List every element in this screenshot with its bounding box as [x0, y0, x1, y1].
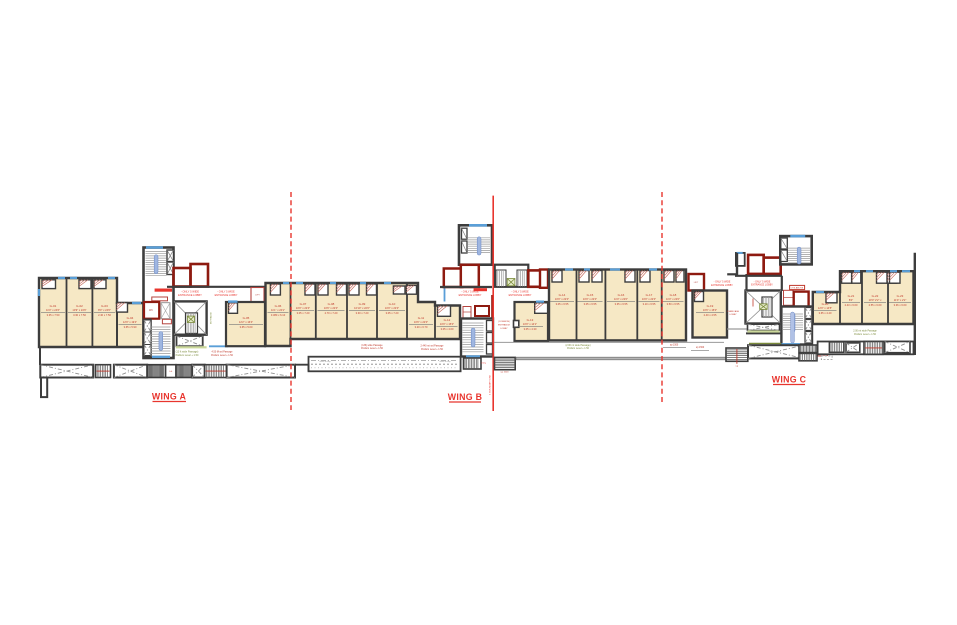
- svg-text:10'6" x 22'0": 10'6" x 22'0": [414, 320, 428, 324]
- svg-text:ENTRANCE LOBBY: ENTRANCE LOBBY: [751, 284, 773, 287]
- svg-text:Podium Level + 1.50: Podium Level + 1.50: [421, 348, 444, 351]
- svg-text:G-23: G-23: [897, 294, 904, 298]
- svg-text:G-17: G-17: [646, 293, 653, 297]
- svg-text:10'0" 2'2" x: 10'0" 2'2" x: [869, 298, 882, 302]
- svg-text:LIFT: LIFT: [255, 295, 260, 297]
- svg-text:2.40 x 7.50: 2.40 x 7.50: [98, 313, 111, 317]
- svg-text:Goes to Sky: Goes to Sky: [770, 350, 781, 353]
- svg-text:(COMMON): (COMMON): [498, 321, 510, 323]
- svg-text:3.35 x 7.50: 3.35 x 7.50: [47, 313, 60, 317]
- svg-text:3.65 x 4.40: 3.65 x 4.40: [819, 311, 832, 315]
- svg-text:2.40 x 4.55: 2.40 x 4.55: [704, 313, 717, 317]
- svg-text:G-16: G-16: [618, 293, 625, 297]
- svg-text:Podium Level + 1.50: Podium Level + 1.50: [361, 347, 384, 350]
- svg-text:G-14: G-14: [559, 293, 566, 297]
- svg-text:G-07: G-07: [300, 302, 307, 306]
- svg-text:G-21: G-21: [848, 294, 855, 298]
- svg-text:3.35 x 6.55: 3.35 x 6.55: [615, 302, 628, 306]
- svg-text:12'0" x 14'5": 12'0" x 14'5": [818, 306, 832, 310]
- svg-text:3.36 x 6.60: 3.36 x 6.60: [894, 303, 907, 307]
- svg-text:STAIRCASE: STAIRCASE: [727, 310, 740, 313]
- svg-text:Podium Level + 1.50: Podium Level + 1.50: [567, 347, 590, 350]
- svg-text:8'0": 8'0": [849, 298, 853, 302]
- svg-text:up 1500: up 1500: [670, 345, 679, 347]
- svg-text:Goes to Sky: Goes to Sky: [440, 360, 451, 363]
- svg-text:ENTRANCE LOBBY: ENTRANCE LOBBY: [509, 294, 532, 297]
- svg-text:Goes to Sky: Goes to Sky: [320, 360, 331, 363]
- svg-text:Podium Level + 1.50: Podium Level + 1.50: [211, 354, 234, 357]
- svg-text:3.05 x 6.55: 3.05 x 6.55: [556, 302, 569, 306]
- svg-text:ENTRANCE LOBBY: ENTRANCE LOBBY: [178, 293, 202, 297]
- svg-text:ENTRANCE LOBBY: ENTRANCE LOBBY: [215, 294, 238, 297]
- svg-text:3.30 x 7.50: 3.30 x 7.50: [73, 313, 86, 317]
- svg-text:G-19: G-19: [707, 304, 714, 308]
- svg-text:WING A: WING A: [152, 392, 187, 402]
- svg-text:OTS ABOVE: OTS ABOVE: [791, 287, 804, 290]
- svg-text:10'0" x 22'0": 10'0" x 22'0": [385, 306, 399, 310]
- svg-text:10'0" x 22'0": 10'0" x 22'0": [555, 297, 569, 301]
- svg-text:10'0" x 22'0": 10'0" x 22'0": [642, 297, 656, 301]
- svg-text:3.05 x 6.55: 3.05 x 6.55: [584, 302, 597, 306]
- svg-text:3. BOUNDARY LINE: 3. BOUNDARY LINE: [489, 374, 492, 395]
- svg-text:3.05 x 4.60: 3.05 x 4.60: [441, 327, 454, 331]
- svg-text:3.10 x 6.55: 3.10 x 6.55: [643, 302, 656, 306]
- svg-text:3.30 x 7.20: 3.30 x 7.20: [356, 311, 369, 315]
- svg-text:8'0" x 24'6": 8'0" x 24'6": [98, 308, 111, 312]
- svg-text:10'9" x 24'6": 10'9" x 24'6": [72, 308, 86, 312]
- svg-text:LIFT: LIFT: [694, 282, 699, 284]
- svg-text:3.05 x 4.30: 3.05 x 4.30: [524, 327, 537, 331]
- svg-text:G-04: G-04: [127, 316, 134, 320]
- svg-text:Podium Level + 1.50: Podium Level + 1.50: [176, 354, 199, 357]
- svg-text:3.65 x 5.00: 3.65 x 5.00: [240, 325, 253, 329]
- svg-text:G-06: G-06: [275, 304, 282, 308]
- svg-text:10'0" x 22'0": 10'0" x 22'0": [296, 306, 310, 310]
- svg-text:11'0" x 22'0": 11'0" x 22'0": [666, 297, 680, 301]
- svg-text:WING C: WING C: [772, 375, 807, 385]
- svg-text:2.55 x 6.60: 2.55 x 6.60: [869, 303, 882, 307]
- svg-text:10'6" x 15'0": 10'6" x 15'0": [703, 308, 717, 312]
- svg-text:11'1" x 20'1": 11'1" x 20'1": [271, 308, 285, 312]
- svg-text:ENTRANCE LOBBY: ENTRANCE LOBBY: [459, 294, 482, 297]
- svg-text:3.05 x 7.20: 3.05 x 7.20: [297, 311, 310, 315]
- svg-text:G-22: G-22: [872, 294, 879, 298]
- svg-text:10'0" x 22'0": 10'0" x 22'0": [583, 297, 597, 301]
- svg-text:3.05 x 7.20: 3.05 x 7.20: [386, 311, 399, 315]
- svg-text:11'0" x 2'2": 11'0" x 2'2": [894, 298, 907, 302]
- svg-text:Lift: Lift: [169, 370, 172, 373]
- svg-text:G-12: G-12: [444, 318, 451, 322]
- svg-text:up 1500: up 1500: [501, 372, 510, 374]
- svg-text:G-09: G-09: [359, 302, 366, 306]
- svg-text:G-05: G-05: [243, 316, 250, 320]
- svg-text:G-02: G-02: [76, 304, 83, 308]
- svg-text:10'0" x 15'0": 10'0" x 15'0": [440, 322, 454, 326]
- svg-text:WING B: WING B: [448, 392, 483, 402]
- svg-text:10'6" x 22'0": 10'6" x 22'0": [324, 306, 338, 310]
- svg-text:G-01: G-01: [50, 304, 57, 308]
- svg-text:3.380 x 6.10: 3.380 x 6.10: [271, 313, 286, 317]
- svg-text:12'2" x 16'4": 12'2" x 16'4": [239, 320, 253, 324]
- svg-text:LOBBY: LOBBY: [500, 328, 508, 330]
- svg-text:11'0" x 22'0": 11'0" x 22'0": [614, 297, 628, 301]
- svg-text:WC: WC: [149, 309, 153, 312]
- svg-text:G-15: G-15: [587, 293, 594, 297]
- svg-text:2.43 x 6.60: 2.43 x 6.60: [845, 303, 858, 307]
- svg-text:3.20 x 6.70: 3.20 x 6.70: [415, 325, 428, 329]
- svg-text:Podium Level + 1.50: Podium Level + 1.50: [854, 333, 877, 336]
- svg-text:3.50 x 6.55: 3.50 x 6.55: [667, 302, 680, 306]
- svg-text:G-13: G-13: [527, 318, 534, 322]
- svg-text:10'0" x 14'1": 10'0" x 14'1": [523, 322, 537, 326]
- svg-text:G-11: G-11: [418, 316, 425, 320]
- svg-text:G-03: G-03: [101, 304, 108, 308]
- svg-text:ENTRANCE: ENTRANCE: [210, 311, 213, 324]
- svg-text:10'10" x 22'0": 10'10" x 22'0": [354, 306, 370, 310]
- svg-text:11'0" x 24'6": 11'0" x 24'6": [46, 308, 60, 312]
- svg-text:G-20: G-20: [822, 302, 829, 306]
- svg-text:ENTRANCE LOBBY: ENTRANCE LOBBY: [711, 284, 733, 287]
- svg-text:up 1500: up 1500: [696, 347, 705, 349]
- svg-text:2.70 x 7.20: 2.70 x 7.20: [325, 311, 338, 315]
- svg-text:LOBBY: LOBBY: [729, 314, 737, 316]
- svg-text:G-10: G-10: [389, 302, 396, 306]
- svg-text:12'0" x 19'4": 12'0" x 19'4": [123, 320, 137, 324]
- svg-text:3.65 x 5.90: 3.65 x 5.90: [124, 325, 137, 329]
- svg-text:ENTRANCE: ENTRANCE: [498, 324, 511, 327]
- svg-text:G-18: G-18: [670, 293, 677, 297]
- svg-text:G-08: G-08: [328, 302, 335, 306]
